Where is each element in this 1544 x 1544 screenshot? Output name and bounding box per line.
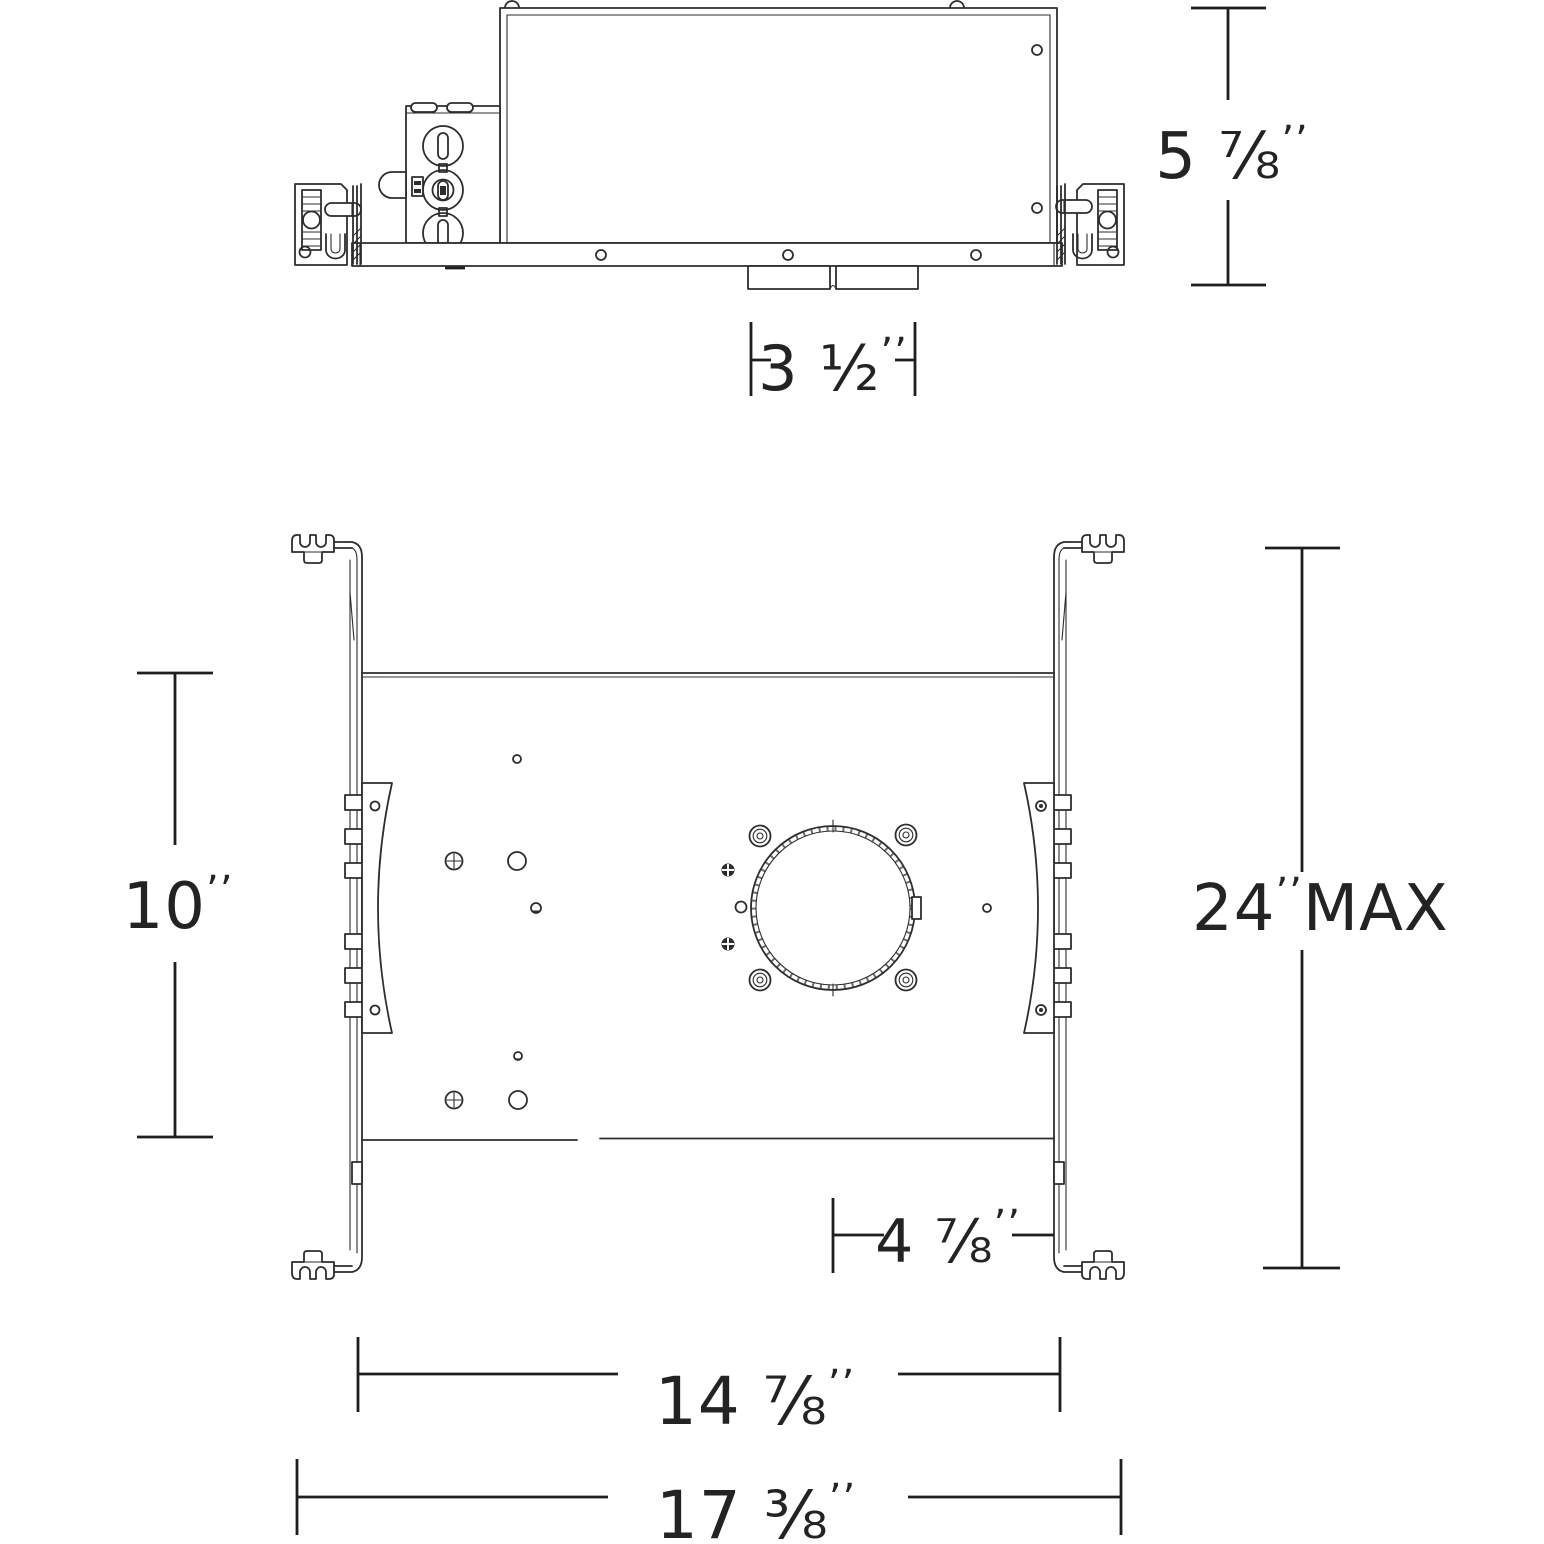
housing-box <box>500 8 1057 243</box>
pan-hole <box>983 904 991 912</box>
dim-label-pan-height: 10’’ <box>123 868 234 944</box>
butterfly-wing <box>362 783 392 1033</box>
screw-bump-icon <box>950 1 964 8</box>
aperture-ring-hatch <box>754 829 913 988</box>
mounting-rail <box>352 243 1062 289</box>
aperture-circle-inner <box>756 831 910 985</box>
torx-screw-icon <box>722 938 735 951</box>
junction-box <box>379 103 500 253</box>
screw-bump-icon <box>505 1 519 8</box>
phillips-screw-icon <box>446 1092 463 1109</box>
hanger-bar-rail <box>352 548 357 1253</box>
cable-clip-mark <box>414 189 421 193</box>
pan-hole <box>513 755 521 763</box>
dim-label-driver-box-width: 3 ½’’ <box>758 330 908 405</box>
aperture-collar-tab <box>836 266 918 289</box>
dim-label-housing-height: 5 ⅞’’ <box>1155 118 1309 194</box>
junction-box-slot <box>447 103 473 112</box>
bar-tab <box>345 1002 363 1017</box>
rivet-icon <box>1039 804 1043 808</box>
cable-clip <box>412 177 423 196</box>
plan-view: 10’’ 24’’MAX 4 ⅞’’ 14 ⅞’’ <box>123 535 1449 1544</box>
bracket-adjust-hole <box>303 212 320 229</box>
cable-clip-mark <box>414 181 421 185</box>
dim-label-aperture-to-bar: 4 ⅞’’ <box>875 1202 1021 1277</box>
pan-hole <box>736 902 747 913</box>
cable-bumper <box>379 172 406 198</box>
hanger-bar-rail <box>1059 548 1064 1253</box>
pan-hole <box>508 852 526 870</box>
grommet-icon <box>750 970 771 991</box>
junction-box-slot <box>411 103 437 112</box>
bar-tab <box>345 934 363 949</box>
junction-box-body <box>406 106 500 243</box>
bar-tab <box>1054 1162 1064 1184</box>
dimension-housing-height: 5 ⅞’’ <box>1155 8 1309 285</box>
butterfly-bracket-left <box>362 783 392 1033</box>
aperture-circle <box>751 826 915 990</box>
aperture <box>722 820 992 996</box>
bar-tab <box>1053 934 1071 949</box>
bar-tab <box>352 1162 362 1184</box>
nail-pin <box>325 203 361 216</box>
side-elevation-view: 5 ⅞’’ 3 ½’’ <box>295 1 1309 405</box>
left-hanger-bar <box>345 542 363 1272</box>
hanger-bar-foot-top-right <box>1064 535 1124 563</box>
hanger-bar-foot-top-left <box>292 535 352 563</box>
hanger-bar-taper <box>350 592 354 640</box>
drawing-page: 5 ⅞’’ 3 ½’’ <box>0 0 1544 1544</box>
grommet-icon <box>896 970 917 991</box>
hanger-bar-foot-bottom-right <box>1064 1251 1124 1279</box>
grommet-icon <box>896 825 917 846</box>
butterfly-wing <box>1024 783 1054 1033</box>
dimension-pan-height: 10’’ <box>123 673 234 1137</box>
bar-tab <box>1053 1002 1071 1017</box>
bar-tab <box>1053 829 1071 844</box>
aperture-tab <box>912 897 921 919</box>
dimension-driver-box-width: 3 ½’’ <box>751 322 915 405</box>
bar-tab <box>345 829 363 844</box>
hanger-bar-foot-bottom-left <box>292 1251 352 1279</box>
bar-tab <box>1053 795 1071 810</box>
dim-label-pan-width: 14 ⅞’’ <box>655 1362 855 1440</box>
grommet-icon <box>750 826 771 847</box>
drawing-canvas: 5 ⅞’’ 3 ½’’ <box>0 0 1544 1544</box>
pan-hole-cluster <box>446 755 542 1109</box>
bar-tab <box>345 863 363 878</box>
right-mounting-bracket <box>1056 184 1124 265</box>
bar-tab <box>345 968 363 983</box>
dim-label-overall-width: 17 ⅜’’ <box>656 1476 856 1544</box>
dimension-overall-width: 17 ⅜’’ <box>297 1459 1121 1544</box>
phillips-screw-icon <box>446 853 463 870</box>
dim-label-bar-extension: 24’’MAX <box>1192 870 1449 946</box>
rail-body <box>352 243 1062 266</box>
bracket-adjust-hole <box>1099 212 1116 229</box>
dimension-bar-extension: 24’’MAX <box>1192 548 1449 1268</box>
hanger-bar-taper <box>1062 592 1066 640</box>
butterfly-bracket-right <box>1024 783 1054 1033</box>
pan-hole <box>509 1091 527 1109</box>
torx-screw-icon <box>722 864 735 877</box>
set-screw-icon <box>440 186 446 195</box>
bar-tab <box>345 795 363 810</box>
rivet-icon <box>1039 1008 1043 1012</box>
right-hanger-bar <box>1053 542 1071 1272</box>
dimension-aperture-to-bar: 4 ⅞’’ <box>833 1198 1054 1277</box>
bar-tab <box>1053 968 1071 983</box>
dimension-pan-width: 14 ⅞’’ <box>358 1337 1060 1440</box>
aperture-collar-tab <box>748 266 830 289</box>
bar-tab <box>1053 863 1071 878</box>
